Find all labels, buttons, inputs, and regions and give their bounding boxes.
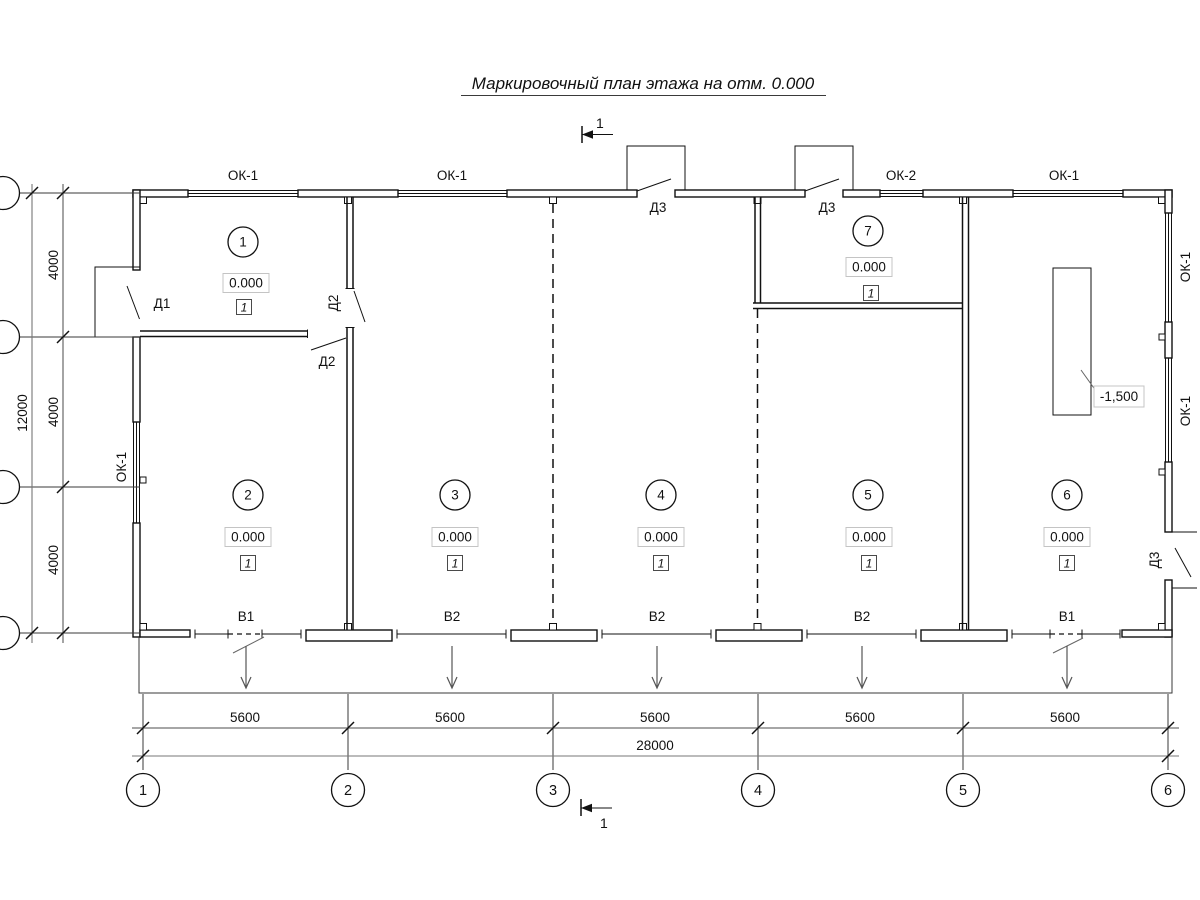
- room-number: 5: [864, 488, 872, 503]
- finish-value: 1: [1064, 557, 1071, 571]
- down-arrow-icon: [447, 646, 457, 688]
- elevation-value: 0.000: [852, 530, 886, 545]
- window-label-top-2: ОК-1: [437, 168, 467, 183]
- left-wall: [133, 190, 146, 637]
- partition-notch: [345, 624, 352, 631]
- wall-pier: [675, 190, 805, 197]
- door-label-d3-top-left: Д3: [650, 200, 667, 215]
- section-arrow-icon: [581, 804, 592, 813]
- wall-corner: [1122, 630, 1172, 637]
- dim-total-label-left: 12000: [15, 394, 30, 432]
- outlet-arrows: [241, 646, 1072, 688]
- down-arrow-icon: [1062, 646, 1072, 688]
- bottom-wall: [140, 624, 1172, 654]
- dim-span-label: 5600: [845, 710, 875, 725]
- outlet-leader: [233, 637, 264, 653]
- room-number: 1: [239, 235, 247, 250]
- door-swing: [354, 291, 365, 322]
- wall-pier: [1165, 190, 1172, 213]
- section-arrow-icon: [582, 130, 593, 139]
- room-6-annotation: 6 0.000 1: [1044, 480, 1090, 571]
- section-mark-bottom: 1: [581, 799, 612, 831]
- outlet-label-v5: В1: [1059, 609, 1076, 624]
- title-block: Маркировочный план этажа на отм. 0.000: [461, 74, 826, 96]
- wall-pilaster: [306, 630, 392, 641]
- room-4-annotation: 4 0.000 1: [638, 480, 684, 571]
- room-number: 4: [657, 488, 665, 503]
- outlet-labels: В1 В2 В2 В2 В1: [238, 609, 1076, 624]
- window-label-left: ОК-1: [114, 452, 129, 482]
- partition-notch: [345, 197, 352, 204]
- partition-notch: [754, 624, 761, 631]
- room-1-annotation: 1 0.000 1: [223, 227, 269, 315]
- window-notch: [140, 477, 146, 483]
- partition-wall-vertical-a: [346, 197, 355, 630]
- wall-pier: [133, 337, 140, 422]
- window-notch: [1159, 334, 1165, 340]
- dim-span-label-left: 4000: [46, 545, 61, 575]
- window-label-right-1: ОК-1: [1178, 252, 1193, 282]
- section-label: 1: [596, 115, 604, 131]
- floor-plan-canvas: Маркировочный план этажа на отм. 0.000 1: [0, 0, 1200, 900]
- room-7-annotation: 7 0.000 1: [846, 216, 892, 301]
- finish-value: 1: [868, 287, 875, 301]
- window-ok1-left: [134, 422, 140, 523]
- elevation-value: 0.000: [1050, 530, 1084, 545]
- pit: -1,500: [1053, 268, 1144, 415]
- window-ok1-top-1: [188, 191, 298, 197]
- finish-value: 1: [245, 557, 252, 571]
- down-arrow-icon: [652, 646, 662, 688]
- dim-span-label: 5600: [640, 710, 670, 725]
- dim-span-label-left: 4000: [46, 397, 61, 427]
- right-wall: [1159, 190, 1172, 637]
- door-label-d3-right: Д3: [1147, 552, 1162, 569]
- room-number: 6: [1063, 488, 1071, 503]
- axis-number: 3: [549, 783, 557, 799]
- left-dimensions: 4000 4000 4000 12000: [0, 177, 140, 650]
- elevation-value: 0.000: [852, 260, 886, 275]
- window-label-top-1: ОК-1: [228, 168, 258, 183]
- door-label-d3-top-right: Д3: [819, 200, 836, 215]
- room-2-annotation: 2 0.000 1: [225, 480, 271, 571]
- door-labels: Д1 Д2 Д2 Д3 Д3 Д3: [154, 200, 1162, 568]
- door-label-d1: Д1: [154, 296, 171, 311]
- finish-value: 1: [241, 301, 248, 315]
- room-number: 7: [864, 224, 872, 239]
- corner-notch: [140, 197, 147, 204]
- window-label-top-4: ОК-1: [1049, 168, 1079, 183]
- partition-wall-vertical-c: [963, 197, 969, 630]
- wall-pier: [923, 190, 1013, 197]
- window-ok1-top-3: [1013, 191, 1123, 197]
- wall-pier: [1165, 580, 1172, 637]
- dim-span-label-left: 4000: [46, 250, 61, 280]
- window-ok1-top-2: [398, 191, 507, 197]
- room-3-annotation: 3 0.000 1: [432, 480, 478, 571]
- partition-notch: [550, 624, 557, 631]
- elevation-value: 0.000: [438, 530, 472, 545]
- elevation-value: 0.000: [644, 530, 678, 545]
- window-ok1-right-2: [1166, 358, 1172, 462]
- axis-number: 4: [754, 783, 762, 799]
- door-swing: [805, 179, 839, 191]
- wall-pier: [843, 190, 880, 197]
- dim-span-label: 5600: [1050, 710, 1080, 725]
- section-mark-top: 1: [582, 115, 613, 143]
- axis-number: 1: [139, 783, 147, 799]
- outlet-label-v1: В1: [238, 609, 255, 624]
- axis-number: 6: [1164, 783, 1172, 799]
- finish-value: 1: [658, 557, 665, 571]
- bottom-dimensions: 5600 5600 5600 5600 5600 28000 1 2 3 4 5…: [127, 694, 1185, 807]
- interior-walls: [140, 197, 969, 630]
- wall-corner: [140, 630, 190, 637]
- outlet-label-v3: В2: [649, 609, 666, 624]
- floor-plan-drawing: Маркировочный план этажа на отм. 0.000 1: [0, 0, 1200, 900]
- room-number: 3: [451, 488, 459, 503]
- down-arrow-icon: [857, 646, 867, 688]
- door-swing: [311, 338, 346, 350]
- pit-outline: [1053, 268, 1091, 415]
- elevation-value: 0.000: [231, 530, 265, 545]
- axis-bubble: [0, 617, 20, 650]
- outlet-leader: [1053, 638, 1083, 653]
- down-arrow-icon: [241, 646, 251, 688]
- wall-pier: [1165, 322, 1172, 358]
- elevation-value: 0.000: [229, 276, 263, 291]
- corner-notch: [1159, 624, 1166, 631]
- dim-total-label: 28000: [636, 738, 674, 753]
- window-labels: ОК-1 ОК-1 ОК-2 ОК-1 ОК-1 ОК-1 ОК-1: [114, 168, 1193, 482]
- door-label-d2-lower: Д2: [319, 354, 336, 369]
- wall-pilaster: [716, 630, 802, 641]
- dim-span-label: 5600: [230, 710, 260, 725]
- outlet-label-v2: В2: [444, 609, 461, 624]
- wall-pier: [507, 190, 637, 197]
- axis-number: 2: [344, 783, 352, 799]
- wall-pier: [133, 190, 140, 270]
- wall-pier: [298, 190, 398, 197]
- corner-notch: [1159, 197, 1166, 204]
- wall-pilaster: [921, 630, 1007, 641]
- partition-notch: [550, 197, 557, 204]
- window-ok1-right-1: [1166, 213, 1172, 322]
- door-swing: [1175, 548, 1191, 577]
- wall-pilaster: [511, 630, 597, 641]
- corner-notch: [140, 624, 147, 631]
- axis-bubbles-bottom: 1 2 3 4 5 6: [127, 774, 1185, 807]
- dim-span-label: 5600: [435, 710, 465, 725]
- wall-pier: [133, 190, 188, 197]
- axis-bubble: [0, 471, 20, 504]
- section-label: 1: [600, 815, 608, 831]
- room-5-annotation: 5 0.000 1: [846, 480, 892, 571]
- room-number: 2: [244, 488, 252, 503]
- axis-number: 5: [959, 783, 967, 799]
- door-swing: [127, 286, 140, 319]
- outlet-label-v4: В2: [854, 609, 871, 624]
- partition-wall-horizontal-b: [140, 330, 308, 339]
- room7-left-wall: [755, 197, 761, 303]
- room7-bottom-wall: [753, 303, 963, 309]
- window-label-right-2: ОК-1: [1178, 396, 1193, 426]
- drawing-title: Маркировочный план этажа на отм. 0.000: [472, 74, 815, 93]
- window-notch: [1159, 469, 1165, 475]
- door-swing: [637, 179, 671, 191]
- pit-elevation-label: -1,500: [1100, 389, 1138, 404]
- axis-bubble: [0, 177, 20, 210]
- axis-bubble: [0, 321, 20, 354]
- door-symbols: [95, 146, 1197, 588]
- finish-value: 1: [866, 557, 873, 571]
- wall-pier: [133, 523, 140, 637]
- window-label-top-3: ОК-2: [886, 168, 916, 183]
- door-landing: [627, 146, 685, 190]
- wall-pier: [1165, 462, 1172, 532]
- window-ok2-top: [880, 191, 923, 197]
- door-label-d2-upper: Д2: [326, 295, 341, 312]
- door-landing: [795, 146, 853, 190]
- finish-value: 1: [452, 557, 459, 571]
